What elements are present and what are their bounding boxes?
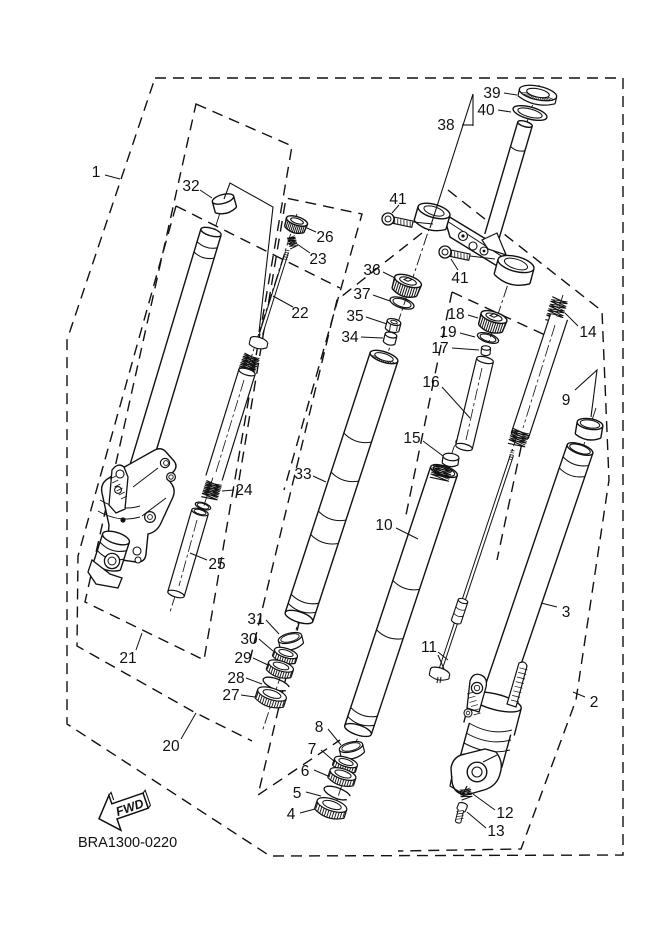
svg-text:5: 5 <box>293 785 302 802</box>
svg-text:38: 38 <box>437 117 454 134</box>
svg-text:40: 40 <box>477 102 495 119</box>
svg-text:7: 7 <box>308 741 317 758</box>
svg-text:16: 16 <box>422 374 439 391</box>
svg-text:31: 31 <box>247 611 264 628</box>
svg-text:14: 14 <box>579 324 597 341</box>
svg-text:32: 32 <box>182 178 199 195</box>
svg-text:17: 17 <box>431 340 448 357</box>
svg-text:15: 15 <box>403 430 420 447</box>
svg-text:29: 29 <box>234 650 251 667</box>
svg-text:19: 19 <box>439 324 456 341</box>
svg-text:9: 9 <box>562 392 571 409</box>
svg-text:41: 41 <box>389 191 406 208</box>
svg-text:6: 6 <box>301 763 310 780</box>
svg-text:22: 22 <box>291 305 308 322</box>
svg-text:20: 20 <box>162 738 180 755</box>
svg-text:27: 27 <box>222 687 239 704</box>
svg-text:36: 36 <box>363 262 380 279</box>
svg-text:11: 11 <box>421 639 437 656</box>
svg-text:33: 33 <box>294 466 311 483</box>
svg-text:35: 35 <box>346 308 363 325</box>
svg-text:39: 39 <box>483 85 500 102</box>
svg-text:41: 41 <box>451 270 468 287</box>
svg-text:BRA1300-0220: BRA1300-0220 <box>78 835 177 851</box>
svg-text:13: 13 <box>487 823 504 840</box>
svg-text:25: 25 <box>208 556 225 573</box>
svg-text:26: 26 <box>316 229 333 246</box>
svg-text:8: 8 <box>315 719 324 736</box>
svg-text:1: 1 <box>92 164 101 181</box>
svg-text:28: 28 <box>227 670 244 687</box>
svg-text:2: 2 <box>590 694 599 711</box>
svg-text:30: 30 <box>240 631 258 648</box>
svg-text:24: 24 <box>235 482 253 499</box>
svg-text:3: 3 <box>562 604 571 621</box>
svg-text:10: 10 <box>375 517 393 534</box>
svg-text:37: 37 <box>353 286 370 303</box>
svg-text:21: 21 <box>119 650 136 667</box>
svg-text:34: 34 <box>341 329 359 346</box>
svg-text:18: 18 <box>447 306 464 323</box>
svg-text:23: 23 <box>309 251 326 268</box>
svg-text:12: 12 <box>496 805 513 822</box>
svg-text:4: 4 <box>287 806 296 823</box>
